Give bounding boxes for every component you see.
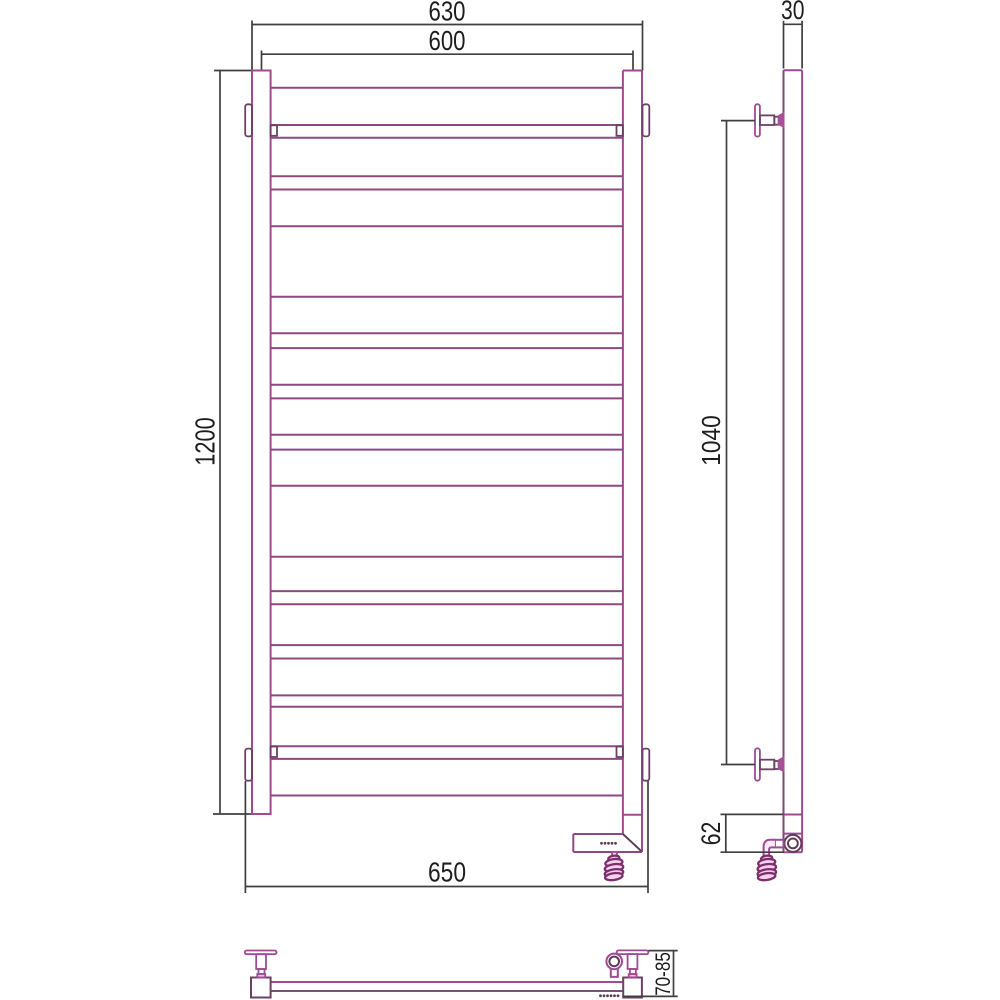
svg-text:1200: 1200 [190,417,221,466]
svg-text:600: 600 [429,25,466,56]
svg-text:630: 630 [429,0,466,27]
svg-text:30: 30 [781,0,805,25]
svg-text:650: 650 [428,857,466,888]
svg-text:1040: 1040 [696,415,726,466]
svg-text:62: 62 [696,822,726,846]
svg-text:70-85: 70-85 [652,952,675,996]
